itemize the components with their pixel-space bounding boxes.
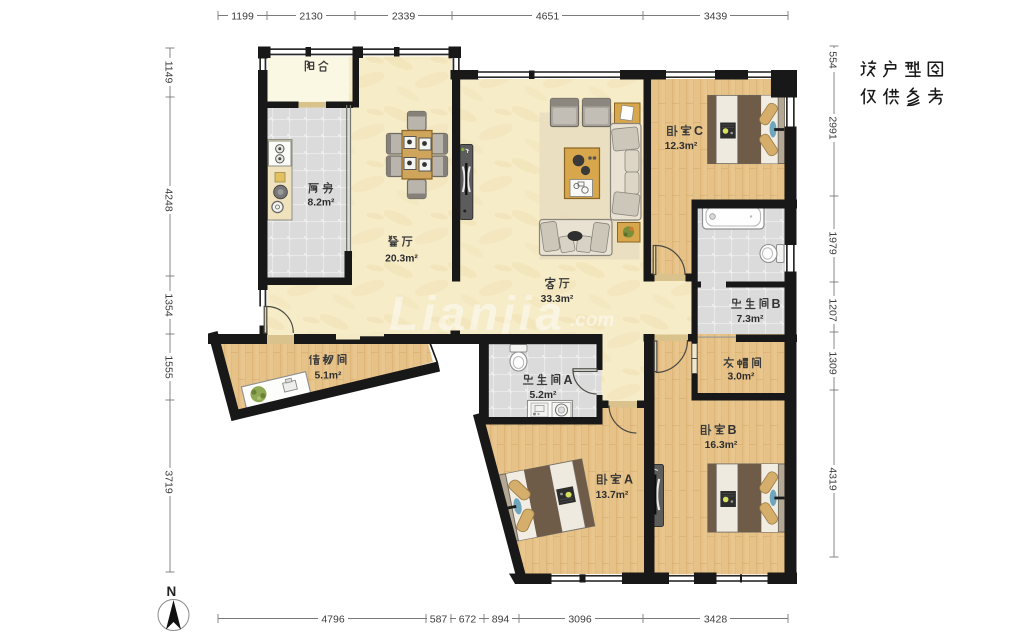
svg-text:3439: 3439 [704, 11, 728, 23]
svg-text:N: N [167, 584, 177, 599]
svg-text:1207: 1207 [827, 298, 839, 322]
svg-text:20.3m²: 20.3m² [385, 254, 418, 265]
svg-text:B: B [728, 423, 737, 437]
svg-text:33.3m²: 33.3m² [541, 294, 574, 305]
svg-text:13.7m²: 13.7m² [596, 490, 629, 501]
svg-text:12.3m²: 12.3m² [665, 141, 698, 152]
svg-text:5.1m²: 5.1m² [315, 371, 342, 382]
svg-text:2130: 2130 [299, 11, 323, 23]
svg-text:A: A [624, 473, 633, 487]
svg-text:16.3m²: 16.3m² [705, 440, 738, 451]
svg-text:894: 894 [492, 614, 510, 626]
svg-text:Lianjia: Lianjia [389, 288, 566, 341]
svg-text:5.2m²: 5.2m² [530, 390, 557, 401]
svg-text:1199: 1199 [231, 11, 254, 23]
svg-text:.com: .com [570, 310, 614, 331]
svg-text:1979: 1979 [827, 231, 839, 255]
svg-text:587: 587 [430, 614, 448, 626]
svg-text:554: 554 [827, 51, 839, 69]
svg-text:4651: 4651 [536, 11, 560, 23]
svg-text:7.3m²: 7.3m² [737, 314, 764, 325]
svg-text:B: B [772, 297, 781, 311]
svg-text:4796: 4796 [321, 614, 345, 626]
svg-text:2339: 2339 [392, 11, 416, 23]
svg-text:8.2m²: 8.2m² [308, 198, 335, 209]
svg-text:1149: 1149 [163, 61, 175, 84]
svg-text:A: A [564, 373, 573, 387]
svg-text:672: 672 [459, 614, 477, 626]
svg-text:3.0m²: 3.0m² [728, 372, 755, 383]
svg-text:3428: 3428 [704, 614, 728, 626]
svg-text:2991: 2991 [827, 116, 839, 140]
svg-text:3719: 3719 [163, 470, 175, 494]
svg-text:1309: 1309 [827, 351, 839, 375]
svg-text:1555: 1555 [163, 355, 175, 379]
svg-text:C: C [694, 124, 703, 138]
svg-text:3096: 3096 [568, 614, 592, 626]
svg-text:4319: 4319 [827, 467, 839, 491]
svg-text:4248: 4248 [163, 188, 175, 212]
svg-text:1354: 1354 [163, 293, 175, 317]
